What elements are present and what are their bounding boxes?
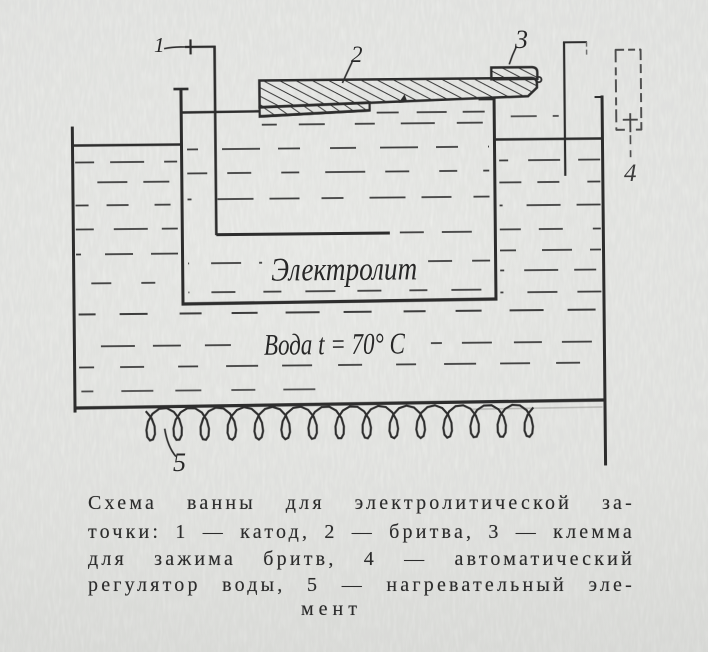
svg-text:3: 3 [514, 25, 528, 54]
svg-text:Вода t = 70° С: Вода t = 70° С [264, 327, 406, 361]
svg-text:4: 4 [624, 160, 637, 187]
svg-text:5: 5 [173, 448, 186, 477]
svg-text:1: 1 [154, 33, 165, 57]
svg-text:Электролит: Электролит [271, 251, 417, 288]
svg-text:2: 2 [351, 42, 363, 67]
